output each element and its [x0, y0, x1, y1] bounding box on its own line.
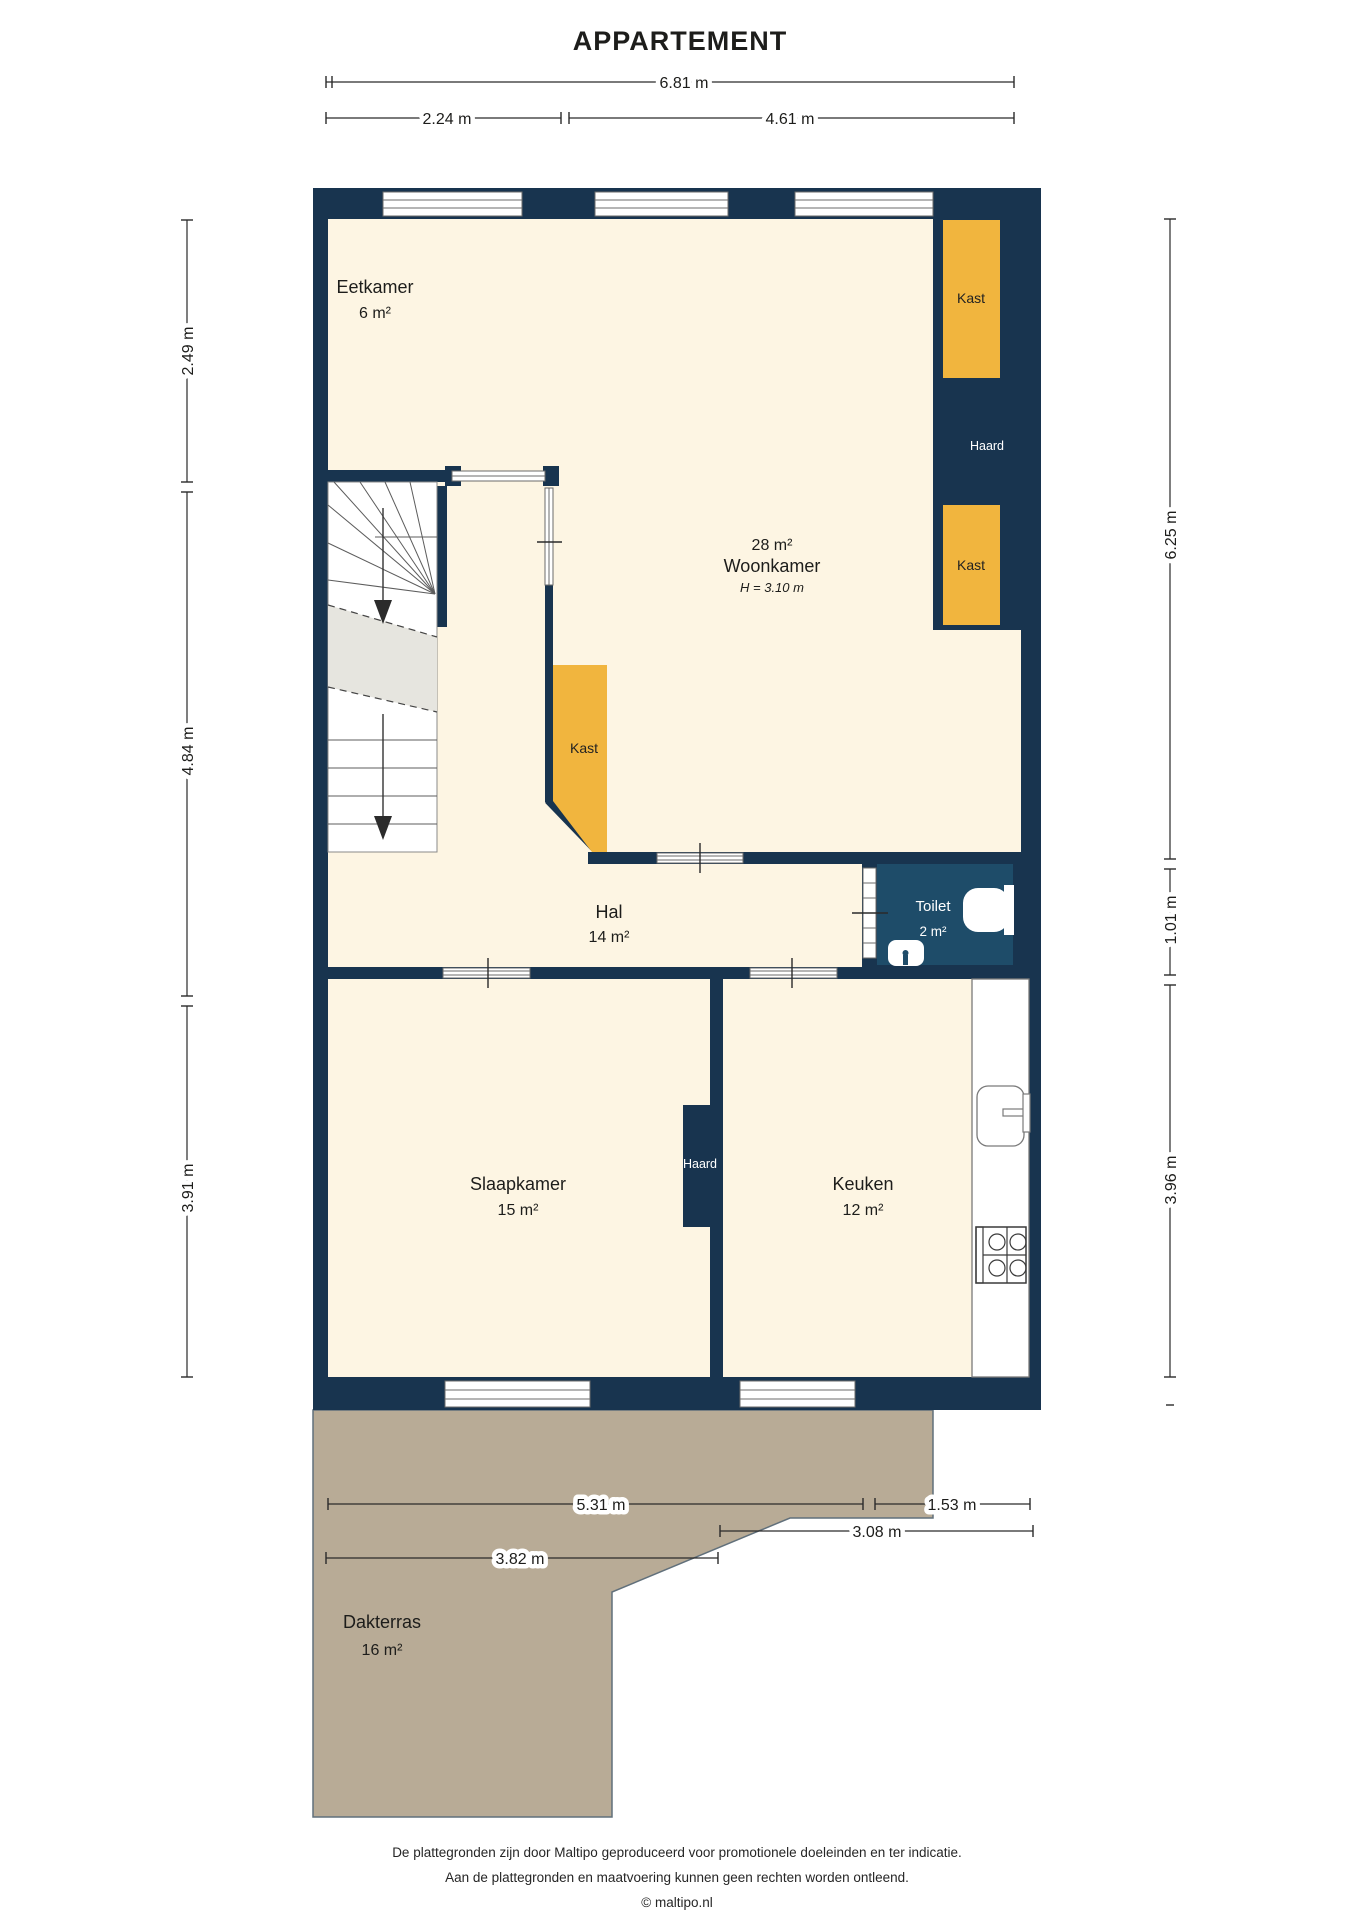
closet-top: Kast	[943, 220, 1000, 378]
closet-label: Kast	[570, 740, 598, 756]
building: Kast Kast Kast Haard Haard	[313, 188, 1041, 1410]
footer-line-3: © maltipo.nl	[641, 1895, 712, 1910]
dimension-right: 6.25 m 1.01 m 3.96 m	[1163, 219, 1180, 1405]
stove-icon	[976, 1227, 1026, 1283]
dim-right-2: 1.01 m	[1163, 896, 1180, 945]
page-title: APPARTEMENT	[573, 26, 788, 56]
room-label-slaapkamer: Slaapkamer	[470, 1174, 566, 1194]
dim-left-2: 4.84 m	[180, 727, 197, 776]
room-area-keuken: 12 m²	[843, 1202, 885, 1219]
dim-top-left: 2.24 m	[423, 111, 472, 128]
closet-mid: Kast	[943, 505, 1000, 625]
dim-terrace-153: 1.53 m	[928, 1497, 977, 1514]
floorplan-canvas: APPARTEMENT 6.81 m 2.24 m 4.61 m 2.49 m …	[0, 0, 1358, 1920]
toilet-room: Toilet 2 m²	[852, 864, 1014, 966]
room-label-hal: Hal	[595, 902, 622, 922]
staircase	[328, 482, 437, 852]
dim-top-total: 6.81 m	[660, 75, 709, 92]
footer-line-2: Aan de plattegronden en maatvoering kunn…	[445, 1870, 909, 1885]
closet-label: Kast	[957, 557, 985, 573]
footer-line-1: De plattegronden zijn door Maltipo gepro…	[392, 1845, 962, 1860]
room-label-woonkamer: Woonkamer	[724, 556, 821, 576]
room-area-woonkamer: 28 m²	[752, 537, 794, 554]
room-label-keuken: Keuken	[832, 1174, 893, 1194]
dim-left-1: 2.49 m	[180, 327, 197, 376]
window-icon	[383, 192, 933, 216]
roof-terrace: Dakterras 16 m² 5.31 m 1.53 m 3.08 m 3.8…	[313, 1410, 1033, 1817]
room-area-eetkamer: 6 m²	[359, 305, 392, 322]
room-area-toilet: 2 m²	[920, 924, 948, 939]
closet-label: Kast	[957, 290, 985, 306]
fireplace-label-slaapkamer: Haard	[683, 1157, 717, 1171]
sink-icon	[888, 940, 924, 966]
room-area-hal: 14 m²	[589, 929, 631, 946]
dim-terrace-531: 5.31 m	[577, 1497, 626, 1514]
toilet-icon	[963, 885, 1014, 935]
fireplace-label-woonkamer: Haard	[970, 439, 1004, 453]
room-label-toilet: Toilet	[915, 898, 951, 915]
dim-left-3: 3.91 m	[180, 1164, 197, 1213]
dimension-top: 6.81 m 2.24 m 4.61 m	[326, 75, 1014, 128]
dim-right-3: 3.96 m	[1163, 1156, 1180, 1205]
dim-terrace-382: 3.82 m	[496, 1551, 545, 1568]
footer-disclaimer: De plattegronden zijn door Maltipo gepro…	[392, 1845, 962, 1910]
kitchen-counter	[972, 979, 1030, 1377]
room-height-woonkamer: H = 3.10 m	[740, 580, 804, 595]
dim-right-1: 6.25 m	[1163, 511, 1180, 560]
room-area-slaapkamer: 15 m²	[498, 1202, 540, 1219]
room-area-dakterras: 16 m²	[362, 1642, 404, 1659]
room-label-dakterras: Dakterras	[343, 1612, 421, 1632]
room-label-eetkamer: Eetkamer	[336, 277, 413, 297]
dim-terrace-308: 3.08 m	[853, 1524, 902, 1541]
dim-top-right: 4.61 m	[766, 111, 815, 128]
sink-icon	[977, 1086, 1030, 1146]
dimension-left: 2.49 m 4.84 m 3.91 m	[180, 220, 197, 1377]
